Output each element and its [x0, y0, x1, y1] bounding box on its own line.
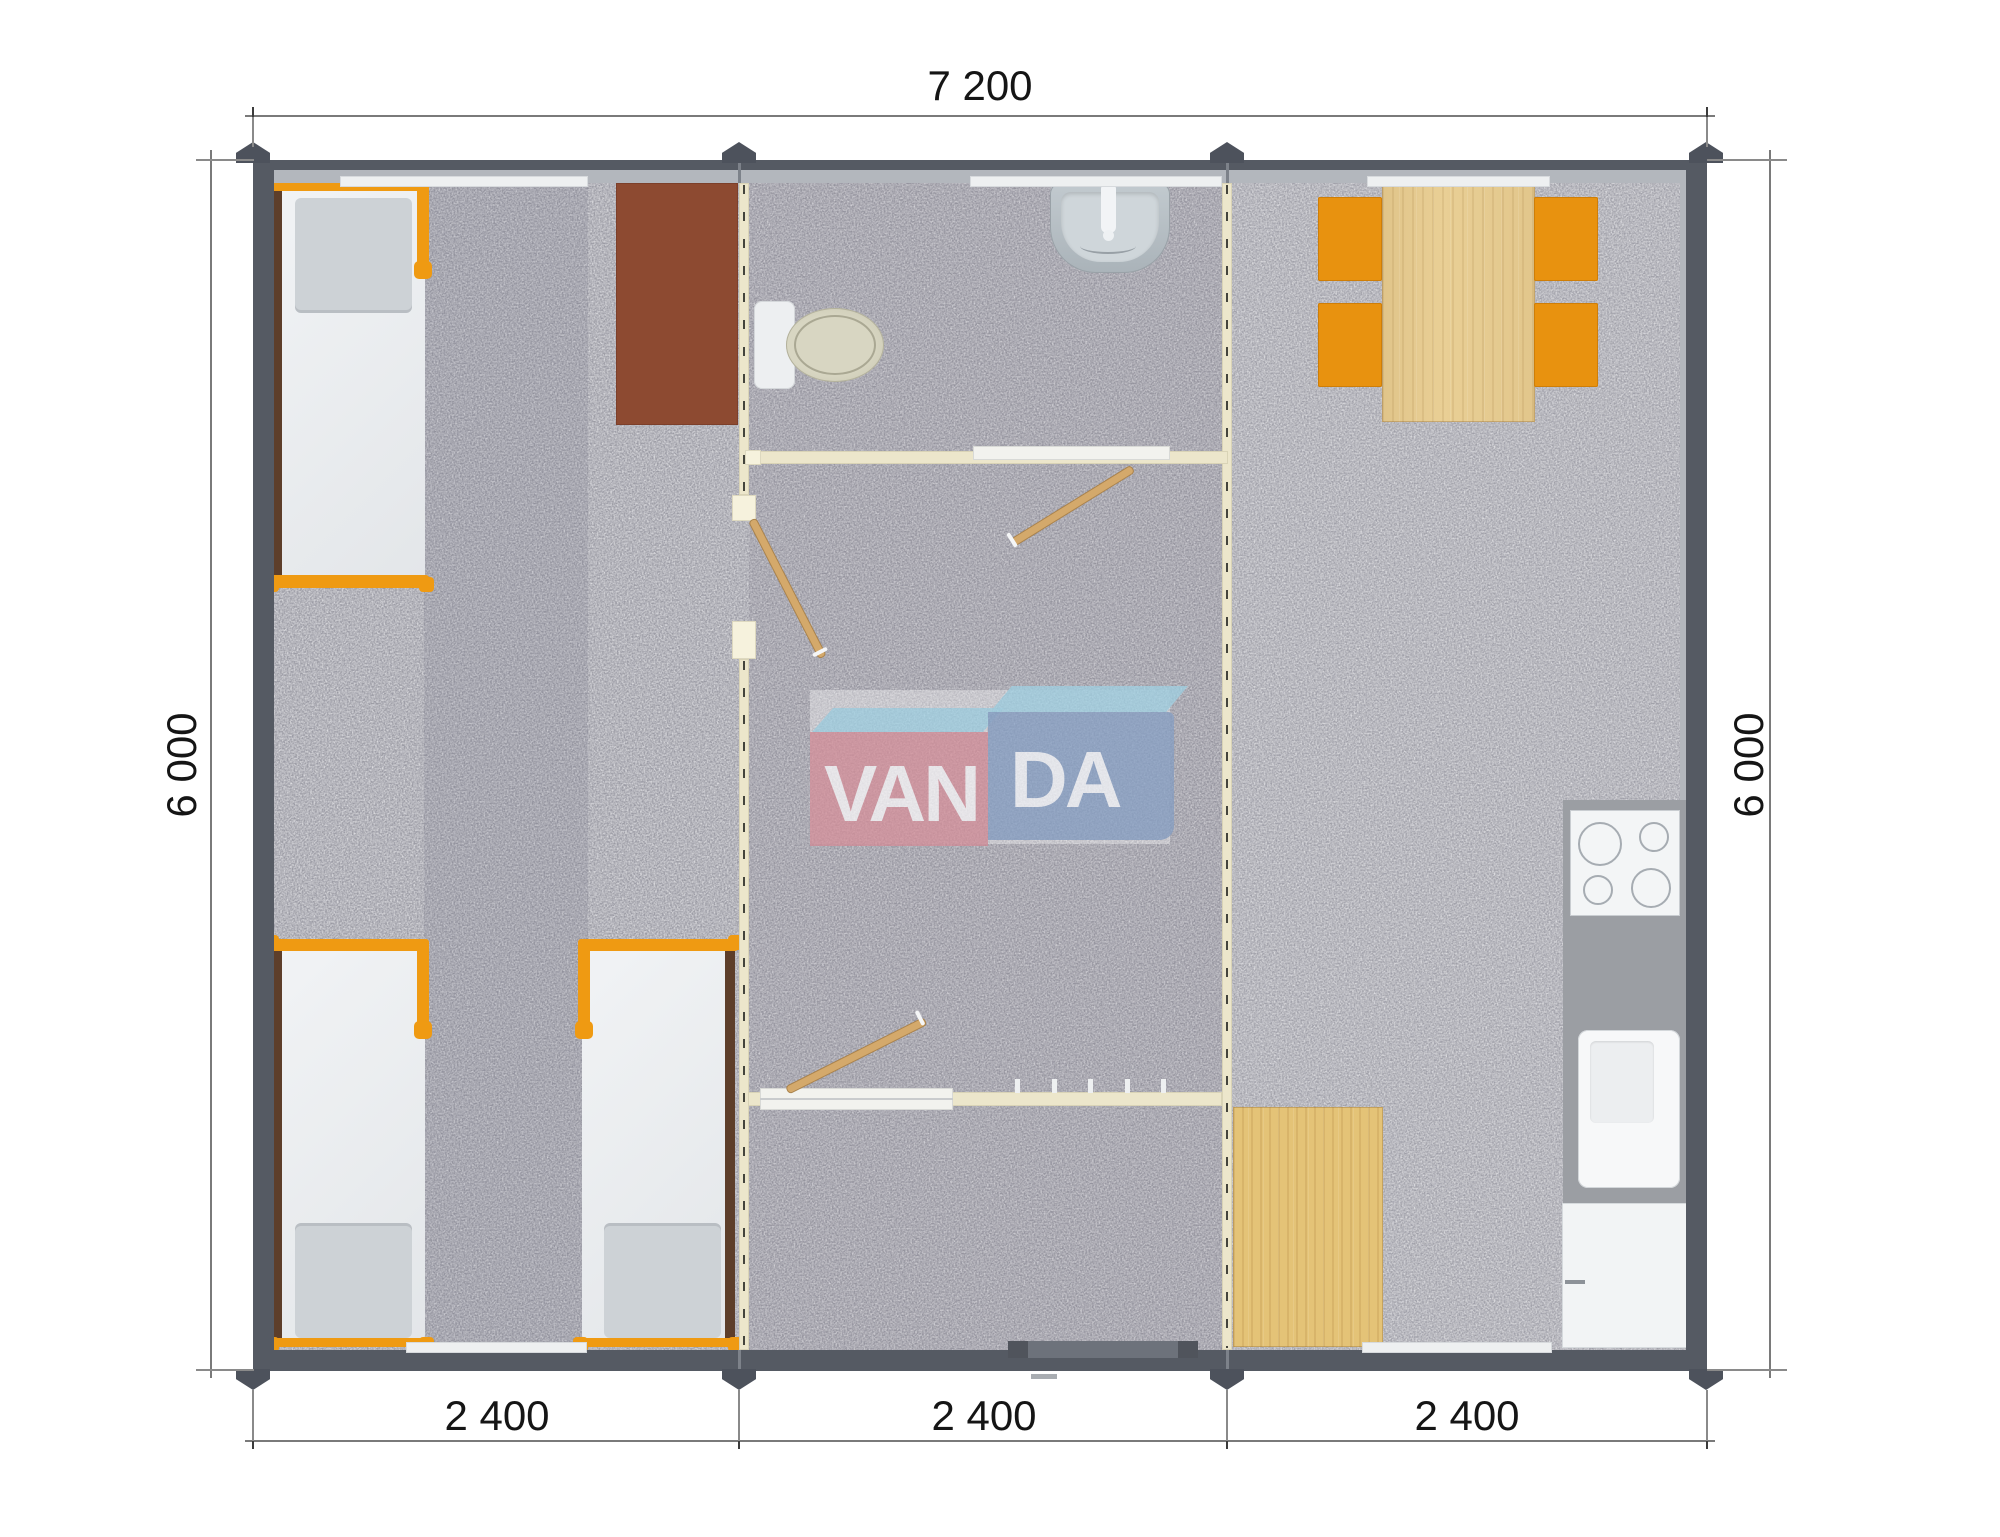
wall-hook [1052, 1079, 1057, 1093]
module-marker [1210, 1369, 1244, 1390]
dimension-line-top [245, 115, 1715, 117]
module-seam [738, 1350, 741, 1371]
burner [1583, 875, 1613, 905]
wall-right [1686, 160, 1707, 1371]
partition-wall-left-lower [739, 659, 749, 1350]
bed-frame-bar [275, 1338, 423, 1347]
extension-line [252, 117, 254, 147]
chair [1318, 197, 1382, 281]
module-marker [236, 1369, 270, 1390]
bathroom-sink [1050, 182, 1170, 273]
chair [1318, 303, 1382, 387]
dining-table [1382, 183, 1535, 422]
wall-end-cap [745, 450, 761, 465]
extension-line [196, 159, 254, 161]
fridge-handle [1565, 1280, 1585, 1284]
bed-frame-rail [578, 947, 590, 1025]
extension-line [252, 1390, 254, 1441]
bed-pillow [604, 1226, 721, 1338]
cooktop [1570, 810, 1680, 916]
dimension-label-left: 6 000 [160, 615, 204, 915]
vanda-watermark: VAN DA [810, 686, 1188, 850]
dimension-label-top: 7 200 [880, 62, 1080, 110]
toilet-seat [794, 315, 876, 375]
faucet-icon [1101, 183, 1116, 233]
window [1367, 176, 1550, 187]
bed-bottom-left [266, 937, 432, 1350]
bed-top-left [266, 177, 432, 590]
module-marker [722, 1369, 756, 1390]
partition-wall-right [1222, 183, 1232, 1350]
bed-frame-knob [414, 261, 432, 279]
bed-frame-bar [269, 939, 429, 951]
faucet-knob [1103, 230, 1114, 241]
bed-frame-knob [575, 1021, 593, 1039]
module-seam [738, 160, 741, 183]
burner [1639, 822, 1669, 852]
entry-door-frame [1008, 1341, 1028, 1358]
entry-step [1031, 1374, 1057, 1379]
wall-lining-right [1680, 183, 1686, 800]
window [970, 176, 1222, 187]
entry-door-frame [1178, 1341, 1198, 1358]
chair [1534, 197, 1598, 281]
dimension-label-bottom-2: 2 400 [884, 1392, 1084, 1440]
floor-plan-canvas: VAN DA 7 200 2 400 2 400 2 400 [0, 0, 2000, 1537]
logo-text-da: DA [1010, 734, 1120, 826]
extension-line [1706, 117, 1708, 147]
kitchen-sink [1578, 1030, 1680, 1188]
extension-line [196, 1369, 254, 1371]
partition-wall-left-upper [739, 183, 749, 495]
bed-side-rail [725, 947, 735, 1342]
window [406, 1342, 587, 1353]
module-marker [722, 142, 756, 163]
toilet-bowl [786, 308, 884, 382]
wall-left [253, 160, 274, 1371]
module-seam [1226, 160, 1229, 183]
sink-recess [1590, 1041, 1654, 1123]
wall-hook [1088, 1079, 1093, 1093]
logo-text-van: VAN [824, 748, 978, 840]
desk [616, 183, 738, 425]
wall-hook [1015, 1079, 1020, 1093]
logo-box-top [812, 708, 1004, 732]
bed-pillow [295, 1226, 412, 1338]
extension-line [738, 1390, 740, 1441]
module-marker [1689, 1369, 1723, 1390]
extension-line [1226, 1390, 1228, 1441]
dimension-label-bottom-1: 2 400 [397, 1392, 597, 1440]
wall-bottom [253, 1350, 1707, 1371]
dimension-label-bottom-3: 2 400 [1367, 1392, 1567, 1440]
door-jamb [732, 495, 756, 521]
bathroom-door-opening [973, 446, 1170, 460]
bed-pillow [295, 198, 412, 310]
module-marker [1210, 142, 1244, 163]
bed-frame-bar [578, 939, 738, 951]
bed-frame-rail [417, 947, 429, 1025]
dimension-line-left [210, 150, 212, 1378]
wall-hook [1125, 1079, 1130, 1093]
bed-frame-corner [419, 577, 434, 592]
bed-frame-bar [584, 1338, 732, 1347]
entry-door [1008, 1341, 1198, 1358]
extension-line [1707, 1369, 1787, 1371]
dimension-line-bottom [245, 1440, 1715, 1442]
fridge [1562, 1203, 1687, 1348]
burner [1578, 822, 1622, 866]
bed-frame-knob [414, 1021, 432, 1039]
chair [1534, 303, 1598, 387]
logo-box-top [990, 686, 1188, 712]
extension-line [1706, 1390, 1708, 1441]
bed-frame-rail [417, 187, 429, 265]
window [340, 176, 588, 187]
door-track-line [760, 1098, 953, 1100]
dimension-label-right: 6 000 [1727, 615, 1771, 915]
door-jamb [732, 621, 756, 659]
extension-line [1707, 159, 1787, 161]
window [1362, 1342, 1552, 1353]
wall-hook [1161, 1079, 1166, 1093]
wood-floor-mat [1233, 1107, 1383, 1347]
bed-frame-bar [269, 575, 429, 588]
bed-bottom-right [575, 937, 741, 1350]
module-seam [1226, 1350, 1229, 1371]
burner [1631, 868, 1671, 908]
